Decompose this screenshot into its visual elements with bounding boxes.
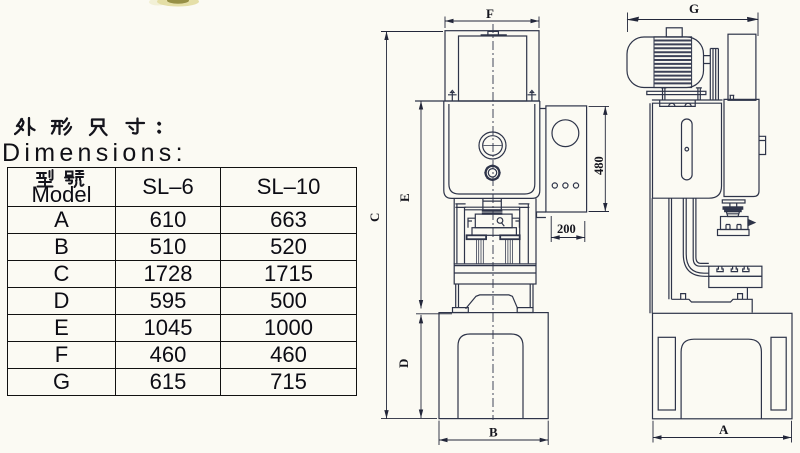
svg-text:A: A bbox=[719, 422, 729, 437]
svg-text:D: D bbox=[396, 359, 411, 368]
svg-text:200: 200 bbox=[557, 222, 576, 236]
svg-text:E: E bbox=[397, 193, 412, 202]
svg-text:480: 480 bbox=[592, 156, 606, 175]
svg-text:G: G bbox=[689, 1, 699, 16]
svg-text:F: F bbox=[486, 6, 494, 21]
svg-text:C: C bbox=[367, 213, 382, 222]
svg-text:B: B bbox=[489, 425, 498, 440]
